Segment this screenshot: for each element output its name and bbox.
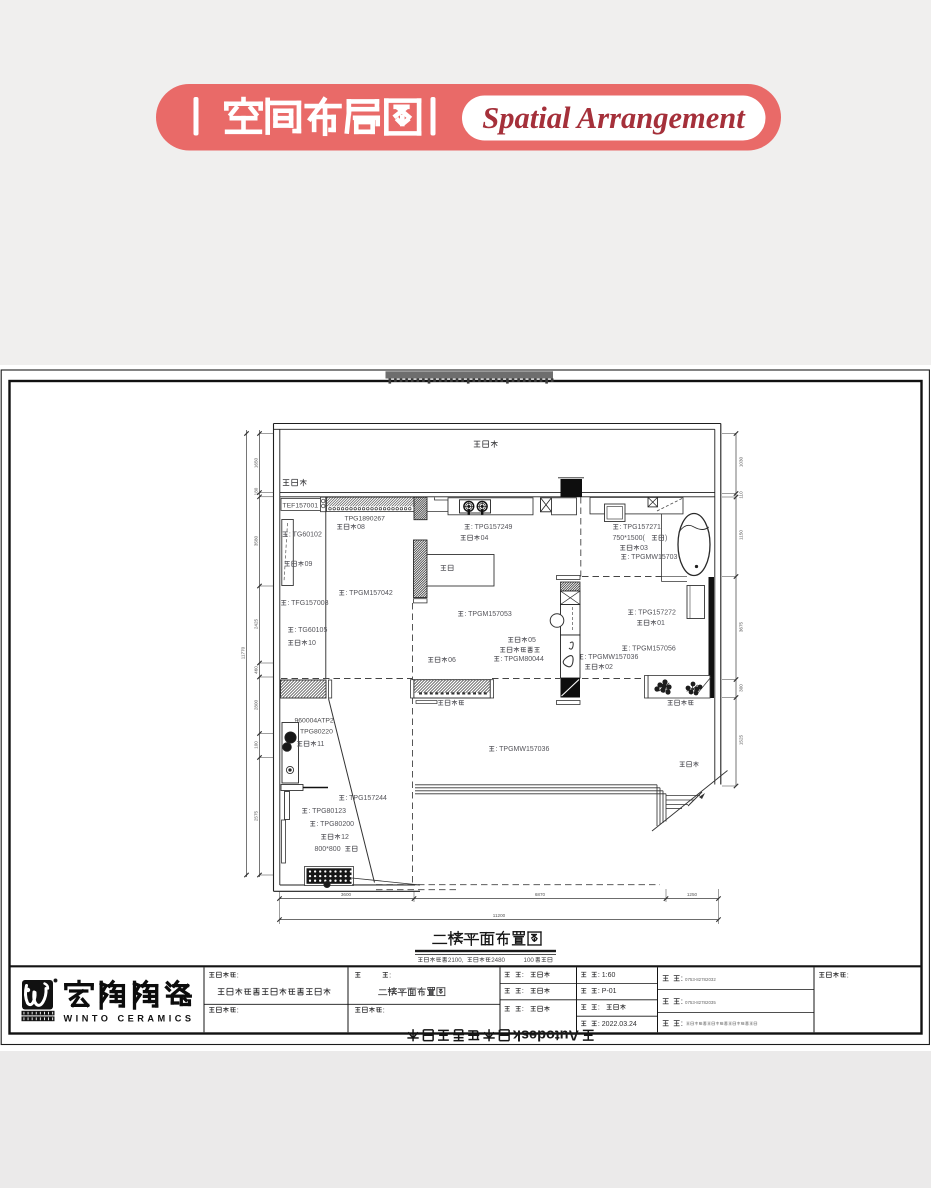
svg-text::: : (681, 974, 683, 983)
svg-text:6870: 6870 (535, 892, 546, 897)
svg-text:960004ATP2: 960004ATP2 (295, 718, 334, 725)
svg-text:Spatial Arrangement: Spatial Arrangement (482, 101, 746, 135)
svg-text:460: 460 (254, 666, 259, 674)
svg-text:: TPG157271: : TPG157271 (619, 524, 661, 531)
svg-text::: : (522, 1006, 524, 1013)
svg-text:: TG60105: : TG60105 (294, 627, 327, 634)
svg-text:2575: 2575 (254, 810, 259, 821)
svg-text:TPG1890267: TPG1890267 (345, 516, 386, 523)
svg-text:: TPGMW157036: : TPGMW157036 (495, 746, 549, 753)
svg-text:1525: 1525 (739, 734, 744, 745)
svg-text:1030: 1030 (739, 456, 744, 467)
svg-text:2100,: 2100, (448, 957, 464, 964)
svg-text:01: 01 (657, 620, 665, 627)
svg-text:2480: 2480 (491, 957, 505, 964)
svg-text:: TPG80200: : TPG80200 (316, 821, 354, 828)
svg-text::: : (681, 1019, 683, 1028)
svg-text:Autodesk: Autodesk (512, 1027, 579, 1043)
svg-text:750*1500(: 750*1500( (613, 535, 646, 542)
svg-text:: TFG157003: : TFG157003 (287, 600, 328, 607)
svg-text:06: 06 (448, 657, 456, 664)
svg-text:12: 12 (341, 834, 349, 841)
svg-text:11: 11 (317, 741, 324, 748)
svg-text:800*800: 800*800 (315, 846, 341, 853)
svg-text:10: 10 (308, 640, 316, 647)
svg-text:3675: 3675 (739, 621, 744, 632)
svg-text:2800: 2800 (254, 699, 259, 710)
svg-text:300: 300 (739, 684, 744, 692)
svg-text:11200: 11200 (493, 913, 506, 918)
svg-text:1650: 1650 (254, 457, 259, 468)
svg-text:110: 110 (739, 491, 744, 499)
svg-text:1150: 1150 (739, 530, 744, 540)
svg-text:WINTO CERAMICS: WINTO CERAMICS (64, 1014, 195, 1024)
svg-text::: : (847, 970, 849, 979)
svg-text:1250: 1250 (687, 892, 698, 897)
svg-text:04: 04 (481, 535, 489, 542)
svg-text:: 2022.03.24: : 2022.03.24 (598, 1021, 637, 1028)
svg-text:180: 180 (254, 487, 259, 495)
svg-text:TPG80220: TPG80220 (300, 729, 333, 736)
svg-text:: TPGMW157036: : TPGMW157036 (584, 654, 638, 661)
svg-text::: : (383, 1005, 385, 1014)
svg-text:2425: 2425 (254, 618, 259, 629)
svg-text:05: 05 (528, 637, 536, 644)
svg-text:09: 09 (305, 561, 313, 568)
svg-text:): ) (665, 535, 667, 542)
svg-text::: : (522, 988, 524, 995)
svg-text:: 1:60: : 1:60 (598, 972, 616, 979)
svg-text:3600: 3600 (341, 892, 352, 897)
svg-text:: TPG80123: : TPG80123 (308, 808, 346, 815)
svg-text:: TPGM157056: : TPGM157056 (628, 646, 675, 653)
svg-text::: : (237, 970, 239, 979)
svg-text:0753-82782032: 0753-82782032 (685, 977, 716, 982)
svg-text::: : (389, 970, 391, 979)
svg-text:: P-01: : P-01 (598, 988, 617, 995)
svg-text:100: 100 (524, 957, 535, 964)
svg-text:11770: 11770 (241, 646, 246, 659)
svg-text::: : (598, 1005, 600, 1012)
svg-text:100: 100 (254, 741, 259, 749)
svg-text:TEF157001: TEF157001 (283, 502, 319, 509)
svg-text:03: 03 (640, 545, 648, 552)
svg-text:: TPG157249: : TPG157249 (471, 524, 513, 531)
svg-text::: : (237, 1005, 239, 1014)
svg-text::: : (522, 972, 524, 979)
svg-text:: TG60102: : TG60102 (289, 532, 322, 539)
svg-text:: TPG157272: : TPG157272 (634, 610, 676, 617)
svg-text:3580: 3580 (254, 535, 259, 546)
svg-text:: TPGMW15703: : TPGMW15703 (627, 554, 677, 561)
svg-text:: TPGM80044: : TPGM80044 (500, 656, 544, 663)
svg-text:08: 08 (357, 524, 365, 531)
svg-text:02: 02 (605, 664, 613, 671)
svg-text:: TPGM157042: : TPGM157042 (345, 590, 392, 597)
svg-text:: TPG157244: : TPG157244 (345, 795, 387, 802)
svg-text:: TPGM157053: : TPGM157053 (464, 611, 511, 618)
svg-text::: : (681, 997, 683, 1006)
svg-text:0753-82782035: 0753-82782035 (685, 1000, 716, 1005)
